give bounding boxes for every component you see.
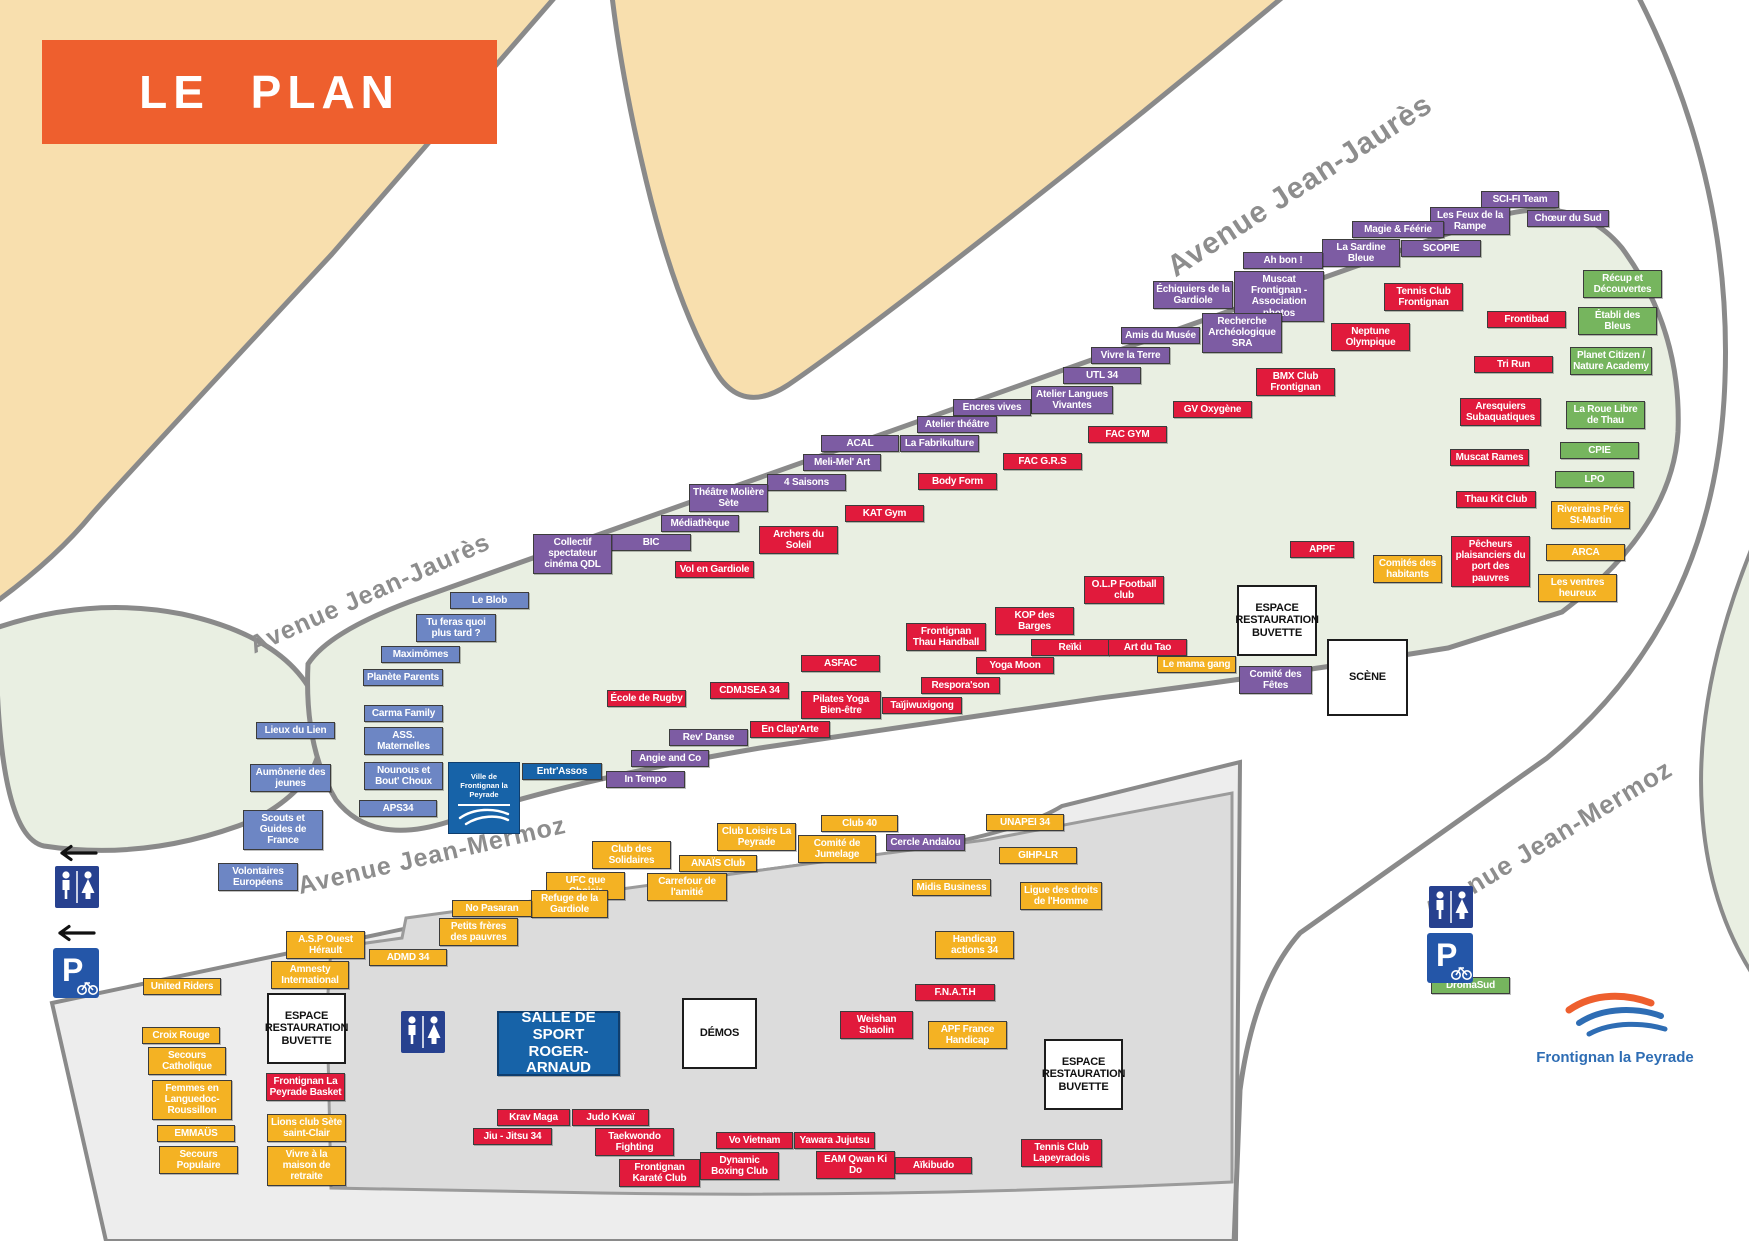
stand-atelier-langues-vivantes: Atelier Langues Vivantes: [1031, 386, 1113, 414]
stand-maximomes: Maximômes: [381, 646, 460, 663]
stand-carma-family: Carma Family: [364, 705, 443, 722]
stand-recherche-archeologique-sra: Recherche Archéologique SRA: [1202, 313, 1282, 353]
stand-weishan-shaolin: Weishan Shaolin: [840, 1011, 913, 1039]
wave-icon: [454, 806, 514, 828]
stand-bic: BIC: [611, 534, 691, 551]
arrow-left-icon: [52, 923, 96, 948]
stand-eam-qwan-ki-do: EAM Qwan Ki Do: [816, 1151, 895, 1179]
stand-aikibudo: Aïkibudo: [895, 1157, 972, 1174]
stand-entr-assos: Entr'Assos: [522, 763, 602, 780]
stand-reiki: Reïki: [1031, 639, 1109, 656]
stand-archers-du-soleil: Archers du Soleil: [759, 526, 838, 554]
stand-magie-feerie: Magie & Féérie: [1352, 221, 1444, 238]
stand-croix-rouge: Croix Rouge: [142, 1027, 220, 1044]
stand-yawara-jujutsu: Yawara Jujutsu: [794, 1132, 875, 1149]
stand-cpie: CPIE: [1560, 442, 1639, 459]
stand-acal: ACAL: [821, 435, 899, 452]
stand-secours-catholique: Secours Catholique: [148, 1047, 226, 1075]
stand-lieux-du-lien: Lieux du Lien: [256, 722, 335, 739]
stand-demos: DÉMOS: [682, 998, 757, 1069]
stand-la-sardine-bleue: La Sardine Bleue: [1322, 239, 1400, 267]
stand-echiquiers-de-la-gardiole: Échiquiers de la Gardiole: [1153, 281, 1233, 309]
stand-frontignan-thau-handball: Frontignan Thau Handball: [906, 623, 986, 651]
stand-kop-des-barges: KOP des Barges: [995, 607, 1074, 635]
stand-art-du-tao: Art du Tao: [1108, 639, 1187, 656]
stand-aumonerie-des-jeunes: Aumônerie des jeunes: [250, 764, 331, 792]
stand-united-riders: United Riders: [143, 978, 221, 995]
stand-riverains-pres-st-martin: Riverains Prés St-Martin: [1551, 501, 1630, 529]
stand-salle-de-sport-roger-arnaud: SALLE DE SPORT ROGER-ARNAUD: [497, 1011, 620, 1076]
map-title-banner: LE PLAN: [42, 40, 497, 144]
stand-handicap-actions-34: Handicap actions 34: [935, 931, 1014, 959]
stand-petits-freres-des-pauvres: Petits frères des pauvres: [439, 918, 518, 946]
stand-asfac: ASFAC: [801, 655, 880, 672]
stand-jiu-jitsu-34: Jiu - Jitsu 34: [473, 1128, 552, 1145]
stand-respora-son: Respora'son: [921, 677, 1000, 694]
stand-planete-parents: Planète Parents: [363, 669, 443, 686]
stand-comites-des-habitants: Comités des habitants: [1373, 555, 1442, 583]
stand-atelier-theatre: Atelier théâtre: [917, 416, 997, 433]
toilets-icon: [55, 866, 99, 913]
stand-rev-danse: Rev' Danse: [669, 729, 748, 746]
stand-club-40: Club 40: [821, 815, 898, 832]
stand-espace-restauration-buvette: ESPACE RESTAURATION BUVETTE: [267, 993, 346, 1064]
svg-text:P: P: [1436, 937, 1457, 973]
stand-frontibad: Frontibad: [1487, 311, 1566, 328]
stand-vivre-a-la-maison-de-retraite: Vivre à la maison de retraite: [267, 1146, 346, 1186]
stand-la-fabrikulture: La Fabrikulture: [900, 435, 979, 452]
stand-scene: SCÈNE: [1327, 639, 1408, 716]
toilets-icon: [1429, 886, 1473, 933]
stand-pilates-yoga-bien-etre: Pilates Yoga Bien-être: [801, 691, 881, 719]
stand-taijiwuxigong: Taïjiwuxigong: [882, 697, 962, 714]
stand-tennis-club-lapeyradois: Tennis Club Lapeyradois: [1021, 1139, 1102, 1167]
page-title: LE PLAN: [139, 65, 400, 119]
stand-ah-bon: Ah bon !: [1243, 252, 1323, 269]
stand-aresquiers-subaquatiques: Aresquiers Subaquatiques: [1460, 398, 1541, 426]
stand-cdmjsea-34: CDMJSEA 34: [710, 682, 789, 699]
stand-femmes-en-languedoc-roussillon: Femmes en Languedoc- Roussillon: [152, 1080, 232, 1120]
stand-frontignan-la-peyrade-basket: Frontignan La Peyrade Basket: [266, 1073, 345, 1101]
stand-ch-ur-du-sud: Chœur du Sud: [1527, 210, 1609, 227]
stand-fac-gym: FAC GYM: [1088, 426, 1167, 443]
stand-ass-maternelles: ASS. Maternelles: [364, 727, 443, 755]
stand-le-blob: Le Blob: [450, 592, 529, 609]
frontignan-logo: Frontignan la Peyrade: [1515, 990, 1715, 1066]
stand-4-saisons: 4 Saisons: [767, 474, 846, 491]
stand-frontignan-karate-club: Frontignan Karaté Club: [619, 1159, 700, 1187]
stand-angie-and-co: Angie and Co: [631, 750, 709, 767]
toilets-icon: [401, 1011, 445, 1058]
stand-collectif-spectateur-cinema-qdl: Collectif spectateur cinéma QDL: [533, 534, 612, 574]
stand-theatre-moliere-sete: Théâtre Molière Sète: [689, 484, 768, 512]
stand-gihp-lr: GIHP-LR: [999, 847, 1077, 864]
stand-espace-restauration-buvette: ESPACE RESTAURATION BUVETTE: [1237, 585, 1317, 656]
stand-sci-fi-team: SCI-FI Team: [1481, 191, 1559, 208]
stand-etabli-des-bleus: Établi des Bleus: [1578, 307, 1657, 335]
parking-bike-icon: P: [1427, 933, 1473, 988]
stand-meli-mel-art: Meli-Mel' Art: [803, 454, 881, 471]
frontignan-logo-label: Frontignan la Peyrade: [1515, 1049, 1715, 1066]
stand-amnesty-international: Amnesty International: [271, 961, 349, 989]
stand-refuge-de-la-gardiole: Refuge de la Gardiole: [531, 890, 608, 918]
stand-club-des-solidaires: Club des Solidaires: [592, 841, 671, 869]
frontignan-wave-icon: [1555, 990, 1675, 1042]
stand-scouts-et-guides-de-france: Scouts et Guides de France: [243, 810, 323, 850]
stand-aps34: APS34: [359, 800, 437, 817]
stand-pecheurs-plaisanciers-du-port-des-pauvres: Pêcheurs plaisanciers du port des pauvre…: [1451, 536, 1530, 587]
stand-comite-de-jumelage: Comité de Jumelage: [798, 835, 876, 863]
stand-anais-club: ANAÏS Club: [679, 855, 757, 872]
stand-encres-vives: Encres vives: [953, 399, 1031, 416]
stand-fac-g-r-s: FAC G.R.S: [1003, 453, 1082, 470]
stand-vivre-la-terre: Vivre la Terre: [1091, 347, 1170, 364]
svg-text:P: P: [62, 952, 83, 988]
event-map: LE PLAN Avenue Jean-JaurèsAvenue Jean-Ja…: [0, 0, 1749, 1241]
stand-midis-business: Midis Business: [912, 879, 991, 896]
stand-lions-club-sete-saint-clair: Lions club Sète saint-Clair: [267, 1114, 346, 1142]
stand-tri-run: Tri Run: [1474, 356, 1553, 373]
stand-ecole-de-rugby: École de Rugby: [607, 690, 686, 707]
stand-carrefour-de-l-amitie: Carrefour de l'amitié: [647, 873, 727, 901]
stand-ligue-des-droits-de-l-homme: Ligue des droits de l'Homme: [1020, 882, 1102, 910]
stand-secours-populaire: Secours Populaire: [159, 1146, 238, 1174]
stand-a-s-p-ouest-herault: A.S.P Ouest Hérault: [286, 931, 365, 959]
stand-body-form: Body Form: [918, 473, 997, 490]
parking-bike-icon: P: [53, 948, 99, 1003]
stand-gv-oxygene: GV Oxygène: [1173, 401, 1252, 418]
stand-espace-restauration-buvette: ESPACE RESTAURATION BUVETTE: [1044, 1039, 1123, 1110]
stand-neptune-olympique: Neptune Olympique: [1331, 323, 1410, 351]
stand-yoga-moon: Yoga Moon: [976, 657, 1054, 674]
stand-dynamic-boxing-club: Dynamic Boxing Club: [700, 1152, 779, 1180]
stand-krav-maga: Krav Maga: [497, 1109, 570, 1126]
stand-tennis-club-frontignan: Tennis Club Frontignan: [1384, 283, 1463, 311]
stand-admd-34: ADMD 34: [369, 949, 447, 966]
stand-club-loisirs-la-peyrade: Club Loisirs La Peyrade: [717, 823, 796, 851]
stand-taekwondo-fighting: Taekwondo Fighting: [595, 1128, 674, 1156]
stand-tu-feras-quoi-plus-tard: Tu feras quoi plus tard ?: [416, 614, 496, 642]
stand-mediatheque: Médiathèque: [661, 515, 739, 532]
stand-emmaus: EMMAÜS: [157, 1125, 235, 1142]
stand-en-clap-arte: En Clap'Arte: [750, 721, 830, 738]
stand-kat-gym: KAT Gym: [845, 505, 924, 522]
stand-thau-kit-club: Thau Kit Club: [1456, 491, 1536, 508]
city-logo-line1: Ville de: [449, 772, 519, 781]
map-background: [0, 0, 1749, 1241]
stand-cercle-andalou: Cercle Andalou: [886, 834, 965, 851]
city-logo-line2: Frontignan la Peyrade: [449, 781, 519, 799]
stand-vol-en-gardiole: Vol en Gardiole: [675, 561, 754, 578]
stand-no-pasaran: No Pasaran: [452, 900, 532, 917]
stand-apf-france-handicap: APF France Handicap: [928, 1021, 1007, 1049]
stand-le-mama-gang: Le mama gang: [1157, 656, 1236, 673]
stand-recup-et-decouvertes: Récup et Découvertes: [1583, 270, 1662, 298]
stand-unapei-34: UNAPEI 34: [986, 814, 1064, 831]
stand-amis-du-musee: Amis du Musée: [1121, 327, 1200, 344]
stand-judo-kwai: Judo Kwaï: [572, 1109, 649, 1126]
stand-arca: ARCA: [1546, 544, 1625, 561]
stand-in-tempo: In Tempo: [606, 771, 685, 788]
arrow-left-icon: [54, 843, 98, 868]
stand-muscat-rames: Muscat Rames: [1450, 449, 1529, 466]
stand-f-n-a-t-h: F.N.A.T.H: [915, 984, 995, 1001]
city-hall-logo: Ville de Frontignan la Peyrade: [448, 762, 520, 834]
stand-planet-citizen-nature-academy: Planet Citizen / Nature Academy: [1570, 347, 1652, 375]
stand-utl-34: UTL 34: [1063, 367, 1141, 384]
stand-les-ventres-heureux: Les ventres heureux: [1538, 574, 1617, 602]
stand-o-l-p-football-club: O.L.P Football club: [1084, 576, 1164, 604]
stand-nounous-et-bout-choux: Nounous et Bout' Choux: [364, 762, 443, 790]
stand-la-roue-libre-de-thau: La Roue Libre de Thau: [1566, 401, 1645, 429]
stand-vo-vietnam: Vo Vietnam: [716, 1132, 793, 1149]
stand-bmx-club-frontignan: BMX Club Frontignan: [1256, 368, 1335, 396]
stand-volontaires-europeens: Volontaires Européens: [218, 863, 298, 891]
stand-appf: APPF: [1290, 541, 1354, 558]
stand-comite-des-fetes: Comité des Fêtes: [1239, 666, 1312, 694]
stand-scopie: SCOPIE: [1401, 240, 1481, 257]
stand-lpo: LPO: [1555, 471, 1634, 488]
